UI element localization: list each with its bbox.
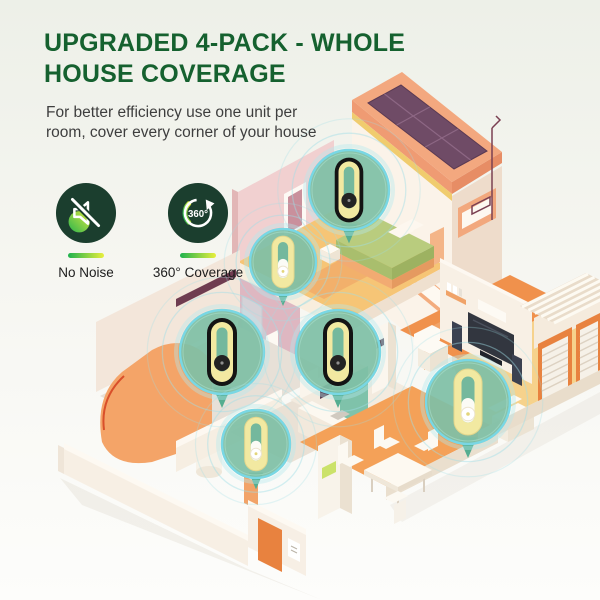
icon-360-text: 360° (188, 209, 208, 220)
muted-speaker-icon (55, 182, 117, 244)
product-infographic: UPGRADED 4-PACK - WHOLE HOUSE COVERAGE F… (0, 0, 600, 600)
subtitle-line-2: room, cover every corner of your house (46, 123, 474, 143)
360-rotation-icon: 360° (167, 182, 229, 244)
accent-underline (68, 253, 104, 258)
title-line-1: UPGRADED 4-PACK - WHOLE (44, 28, 474, 59)
header: UPGRADED 4-PACK - WHOLE HOUSE COVERAGE F… (44, 28, 474, 144)
subtitle: For better efficiency use one unit per r… (46, 103, 474, 144)
badge-label: No Noise (58, 265, 114, 282)
subtitle-line-1: For better efficiency use one unit per (46, 103, 474, 123)
feature-badges: No Noise 360° 360° Coverage (40, 182, 244, 282)
accent-underline (180, 253, 216, 258)
page-title: UPGRADED 4-PACK - WHOLE HOUSE COVERAGE (44, 28, 474, 89)
badge-no-noise: No Noise (40, 182, 132, 282)
title-line-2: HOUSE COVERAGE (44, 59, 474, 90)
speaker-left (452, 321, 462, 352)
speaker-right (512, 354, 522, 386)
badge-label: 360° Coverage (153, 265, 243, 282)
badge-360-coverage: 360° 360° Coverage (152, 182, 244, 282)
